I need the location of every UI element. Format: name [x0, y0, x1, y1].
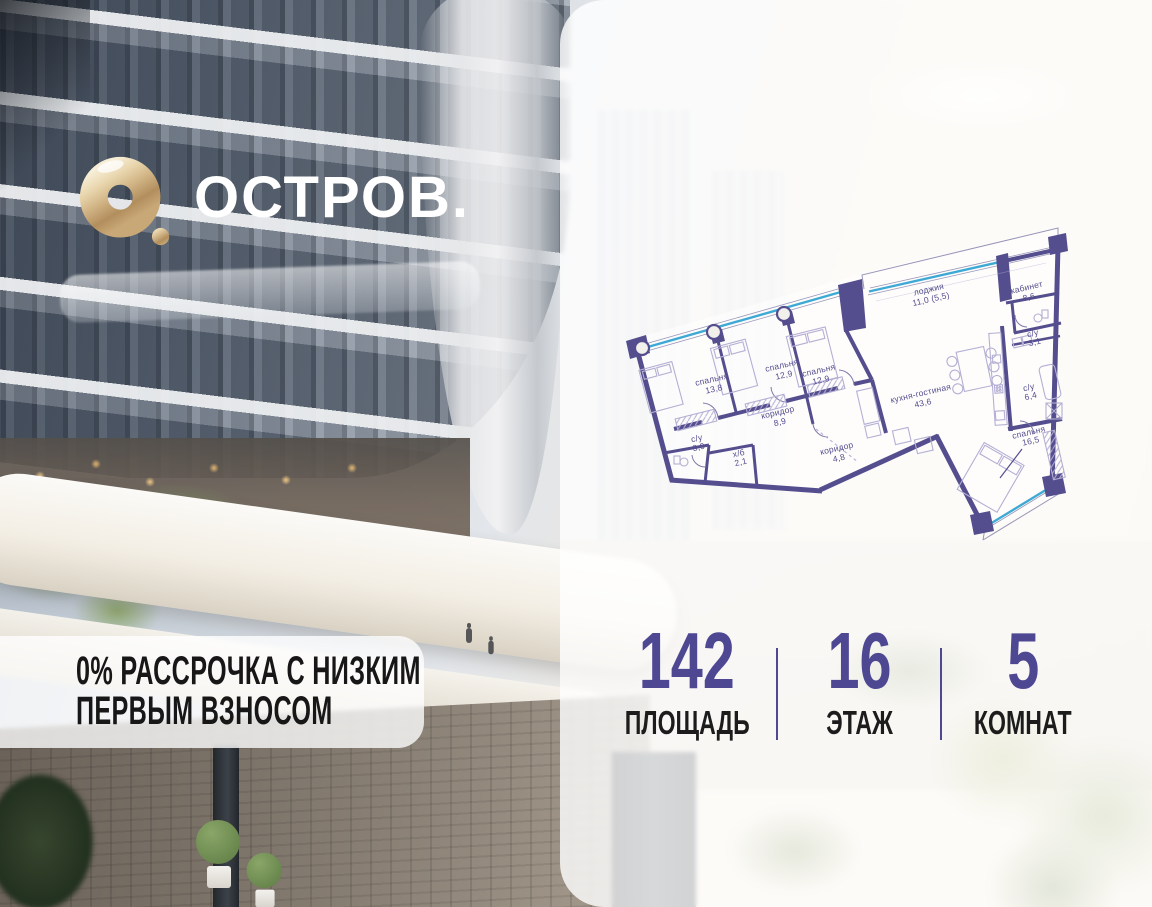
- floor-plan: спальня13,8 спальня12,9 спальня12,9 лодж…: [610, 215, 1080, 555]
- stat-floor-value: 16: [827, 622, 891, 700]
- potted-tree: [196, 820, 242, 888]
- brand-logo: ОСТРОВ.: [78, 154, 470, 250]
- promo-banner: 0% РАССРОЧКА С НИЗКИМ ПЕРВЫМ ВЗНОСОМ: [0, 636, 424, 748]
- pedestrian: [488, 641, 493, 655]
- potted-tree: [247, 853, 284, 907]
- stat-area-label: ПЛОЩАДЬ: [625, 706, 750, 740]
- promo-card: спальня13,8 спальня12,9 спальня12,9 лодж…: [0, 0, 1152, 907]
- logo-dot: [152, 228, 169, 245]
- stats-bar: 142 ПЛОЩАДЬ 16 ЭТАЖ 5 КОМНАТ: [598, 622, 1104, 752]
- facade-shadow: [0, 0, 90, 190]
- stat-rooms-value: 5: [1007, 622, 1039, 700]
- pedestrian: [466, 628, 472, 643]
- stat-floor-label: ЭТАЖ: [826, 706, 893, 740]
- stat-floor: 16 ЭТАЖ: [778, 622, 940, 752]
- stat-area-value: 142: [639, 622, 735, 700]
- brand-logo-icon: [78, 154, 174, 250]
- stat-rooms: 5 КОМНАТ: [942, 622, 1104, 752]
- planting: [0, 752, 136, 907]
- stat-rooms-label: КОМНАТ: [974, 706, 1072, 740]
- promo-line-2: ПЕРВЫМ ВЗНОСОМ: [76, 691, 333, 731]
- stat-area: 142 ПЛОЩАДЬ: [598, 622, 776, 752]
- brand-name: ОСТРОВ.: [194, 164, 470, 241]
- promo-line-1: 0% РАССРОЧКА С НИЗКИМ: [76, 651, 421, 691]
